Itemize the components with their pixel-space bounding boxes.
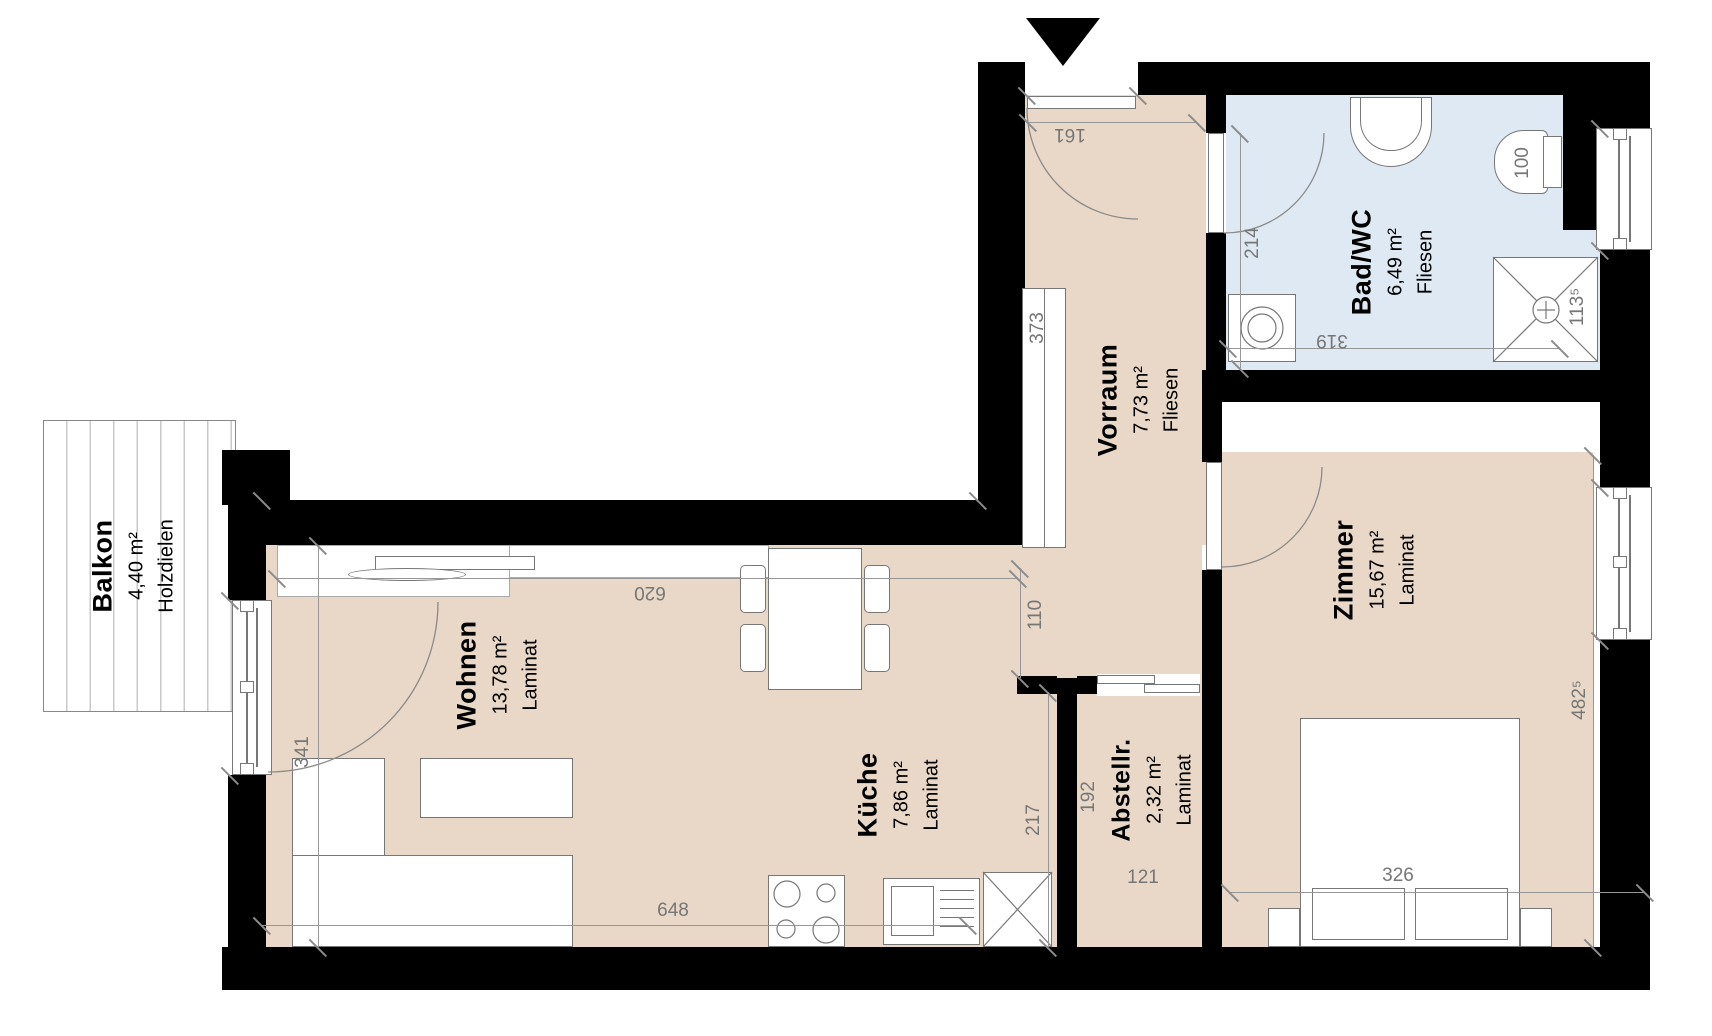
room-name: Abstellr. [1108,738,1137,841]
wall-top [1138,62,1650,95]
dim-648: 648 [657,900,689,922]
zimmer-window-frame2 [1613,556,1627,568]
dim-121: 121 [1127,867,1159,889]
room-label-abstellraum: Abstellr. 2,32 m² Laminat [1108,738,1197,841]
balkon-door-frame [240,600,254,612]
wall-zimmer-left-a [1202,402,1222,462]
wall-right-1 [1600,62,1650,128]
abstell-sliding-panel-2 [1144,684,1200,693]
entrance-door-leaf [1027,96,1136,109]
chair [740,565,766,613]
bad-window-glass [1618,136,1620,242]
bed-pillow [1312,888,1405,940]
room-name: Küche [853,752,884,837]
wall-bad-bottom [1202,370,1650,402]
zimmer-door-leaf [1206,462,1222,570]
balkon-door-glass2 [256,608,258,767]
room-area: 13,78 m² [490,636,513,715]
room-name: Balkon [88,519,119,612]
floor-plan: Balkon 4,40 m² Holzdielen Wohnen 13,78 m… [0,0,1712,1036]
dim-319: 319 [1316,329,1348,351]
entrance-arrow-icon [1026,18,1100,66]
room-area: 7,73 m² [1131,366,1154,434]
sink-drainboard [940,908,974,909]
wohnen-wall-ledge [509,545,769,578]
wall-wc-niche [1563,95,1600,230]
dim-line-648 [262,925,968,926]
bad-window [1596,128,1652,250]
dim-620: 620 [634,581,666,603]
toilet-tank [1543,136,1562,188]
nightstand [1520,908,1552,947]
dim-line-110 [1020,568,1021,678]
wall-abstell-left [1057,678,1077,947]
wall-vorraum-left [978,62,1025,545]
wall-bad-left-b [1206,233,1226,370]
wall-left-upper [228,455,266,600]
balkon-door-frame3 [240,763,254,775]
dim-line-341 [318,545,319,947]
chair [864,624,890,672]
room-name: Vorraum [1093,344,1124,457]
bed-pillow [1415,888,1508,940]
room-floor: Fliesen [1415,230,1438,294]
room-name: Zimmer [1329,520,1360,621]
dim-217: 217 [1023,804,1045,836]
dim-110: 110 [1025,600,1047,630]
dim-326: 326 [1382,865,1414,887]
dim-373: 373 [1027,312,1049,344]
sink-drainboard [940,917,974,918]
room-name: Bad/WC [1347,209,1378,316]
zimmer-window-glass2 [1629,495,1631,632]
nightstand [1268,908,1300,947]
dim-line-214 [1240,133,1241,368]
dining-table [768,548,862,690]
dim-4825: 482⁵ [1569,680,1591,720]
wall-right-2 [1600,250,1650,487]
room-area: 6,49 m² [1385,228,1408,296]
room-area: 4,40 m² [126,532,149,600]
zimmer-window-frame3 [1613,628,1627,640]
bad-window-glass2 [1629,136,1631,242]
radiator-fin [348,568,466,581]
wall-abstell-top-stub [1017,676,1057,694]
dim-100: 100 [1512,147,1534,179]
room-name: Wohnen [452,621,483,730]
dim-line-326 [1230,892,1645,893]
dim-line-319 [1228,348,1560,349]
dim-214: 214 [1242,227,1264,259]
chair [864,565,890,613]
room-label-wohnen: Wohnen 13,78 m² Laminat [452,621,543,730]
wall-zimmer-left-b [1202,570,1222,947]
sink-drainboard [940,890,974,891]
dim-line-620 [277,578,1018,579]
bad-door-leaf [1208,133,1224,233]
dim-1135: 113⁵ [1567,288,1589,326]
kitchen-appliance [983,872,1052,947]
zimmer-window-frame [1613,487,1627,499]
dim-341: 341 [292,736,314,768]
washing-machine [1228,294,1296,362]
wall-right-3 [1600,640,1650,990]
room-floor: Laminat [520,639,543,710]
wall-bad-left-a [1206,95,1226,133]
room-label-zimmer: Zimmer 15,67 m² Laminat [1329,520,1420,621]
wall-wohnen-top [262,500,1020,545]
stove [768,875,845,947]
room-floor: Holzdielen [156,519,179,612]
room-area: 2,32 m² [1144,756,1167,824]
wall-bottom [222,947,1650,990]
chair [740,624,766,672]
room-area: 15,67 m² [1367,531,1390,610]
bad-window-frame2 [1613,238,1627,250]
dim-161: 161 [1054,123,1086,145]
dim-line-4825 [1593,455,1594,947]
room-floor: Laminat [1174,754,1197,825]
sofa-seat [292,855,573,947]
dim-line-217 [1048,692,1049,947]
room-floor: Fliesen [1161,368,1184,432]
bad-window-frame [1613,128,1627,140]
room-area: 7,86 m² [891,761,914,829]
sink-drainboard [940,899,974,900]
room-label-bad: Bad/WC 6,49 m² Fliesen [1347,209,1438,316]
room-label-vorraum: Vorraum 7,73 m² Fliesen [1093,344,1184,457]
coffee-table [420,758,573,818]
room-label-balkon: Balkon 4,40 m² Holzdielen [88,519,179,612]
balkon-door-frame2 [240,681,254,693]
room-floor: Laminat [921,759,944,830]
room-floor: Laminat [1397,534,1420,605]
dim-192: 192 [1078,781,1100,813]
wall-abstell-top [1077,676,1097,694]
room-label-kueche: Küche 7,86 m² Laminat [853,752,944,837]
abstell-sliding-panel-1 [1097,675,1155,684]
sink-basin [891,886,934,936]
